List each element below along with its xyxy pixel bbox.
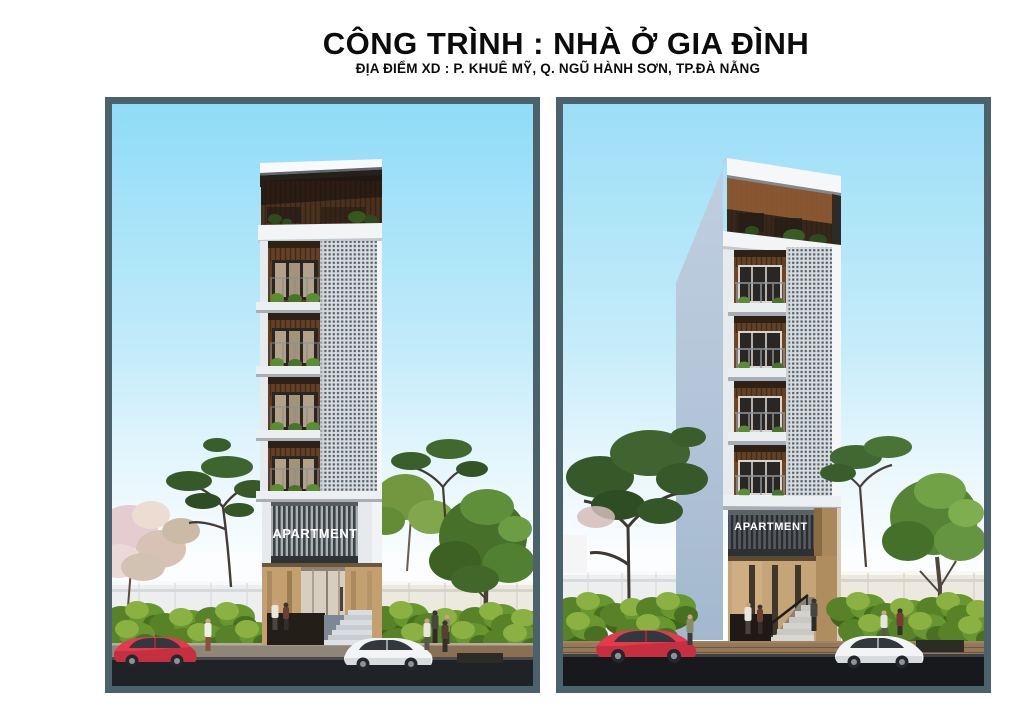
svg-text:APARTMENT: APARTMENT [734, 521, 808, 533]
svg-text:APARTMENT: APARTMENT [272, 526, 357, 541]
